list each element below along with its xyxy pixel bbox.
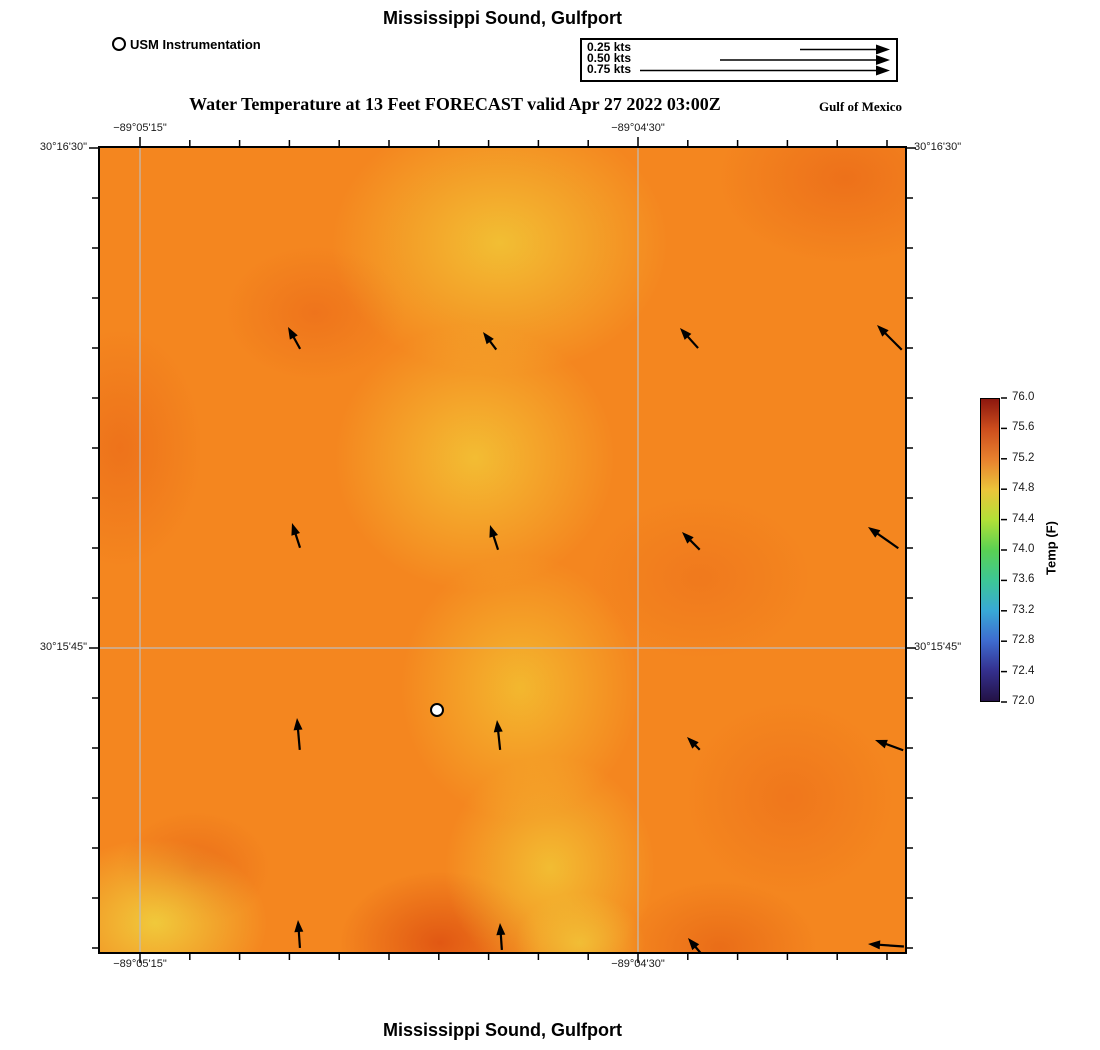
colorbar-title: Temp (F)	[1044, 521, 1059, 575]
velocity-legend-label-075: 0.75 kts	[587, 64, 631, 75]
colorbar-tick-label: 75.6	[1012, 421, 1052, 433]
lon-tick-label-bottom: −89°05'15"	[113, 958, 167, 970]
lon-tick-label-bottom: −89°04'30"	[611, 958, 665, 970]
lon-tick-label-top: −89°04'30"	[611, 122, 665, 134]
colorbar-tick-label: 76.0	[1012, 391, 1052, 403]
lat-tick-label-right: 30°15'45"	[914, 641, 961, 653]
colorbar-tick-label: 72.4	[1012, 665, 1052, 677]
current-vector-arrows	[288, 325, 904, 952]
instrument-legend-label: USM Instrumentation	[130, 37, 261, 52]
usm-station-marker	[430, 703, 444, 717]
lat-tick-label-right: 30°16'30"	[914, 141, 961, 153]
colorbar-tick-label: 73.6	[1012, 573, 1052, 585]
region-label: Gulf of Mexico	[702, 99, 902, 115]
instrument-legend: USM Instrumentation	[112, 36, 261, 52]
temperature-map	[98, 146, 907, 954]
colorbar	[980, 398, 1000, 702]
page-title-bottom: Mississippi Sound, Gulfport	[100, 1020, 905, 1041]
plot-page: Mississippi Sound, Gulfport USM Instrume…	[0, 0, 1100, 1050]
colorbar-tick-label: 72.0	[1012, 695, 1052, 707]
station-circle-icon	[112, 37, 126, 51]
colorbar-tick-label: 74.8	[1012, 482, 1052, 494]
map-overlay	[100, 148, 905, 952]
grid-lines	[100, 148, 905, 952]
colorbar-tick-label: 72.8	[1012, 634, 1052, 646]
lat-tick-label-left: 30°16'30"	[0, 141, 87, 153]
lon-tick-label-top: −89°05'15"	[113, 122, 167, 134]
colorbar-tick-label: 75.2	[1012, 452, 1052, 464]
lat-tick-label-left: 30°15'45"	[0, 641, 87, 653]
velocity-legend: 0.25 kts 0.50 kts 0.75 kts	[580, 38, 898, 82]
page-title: Mississippi Sound, Gulfport	[100, 8, 905, 29]
colorbar-tick-label: 73.2	[1012, 604, 1052, 616]
